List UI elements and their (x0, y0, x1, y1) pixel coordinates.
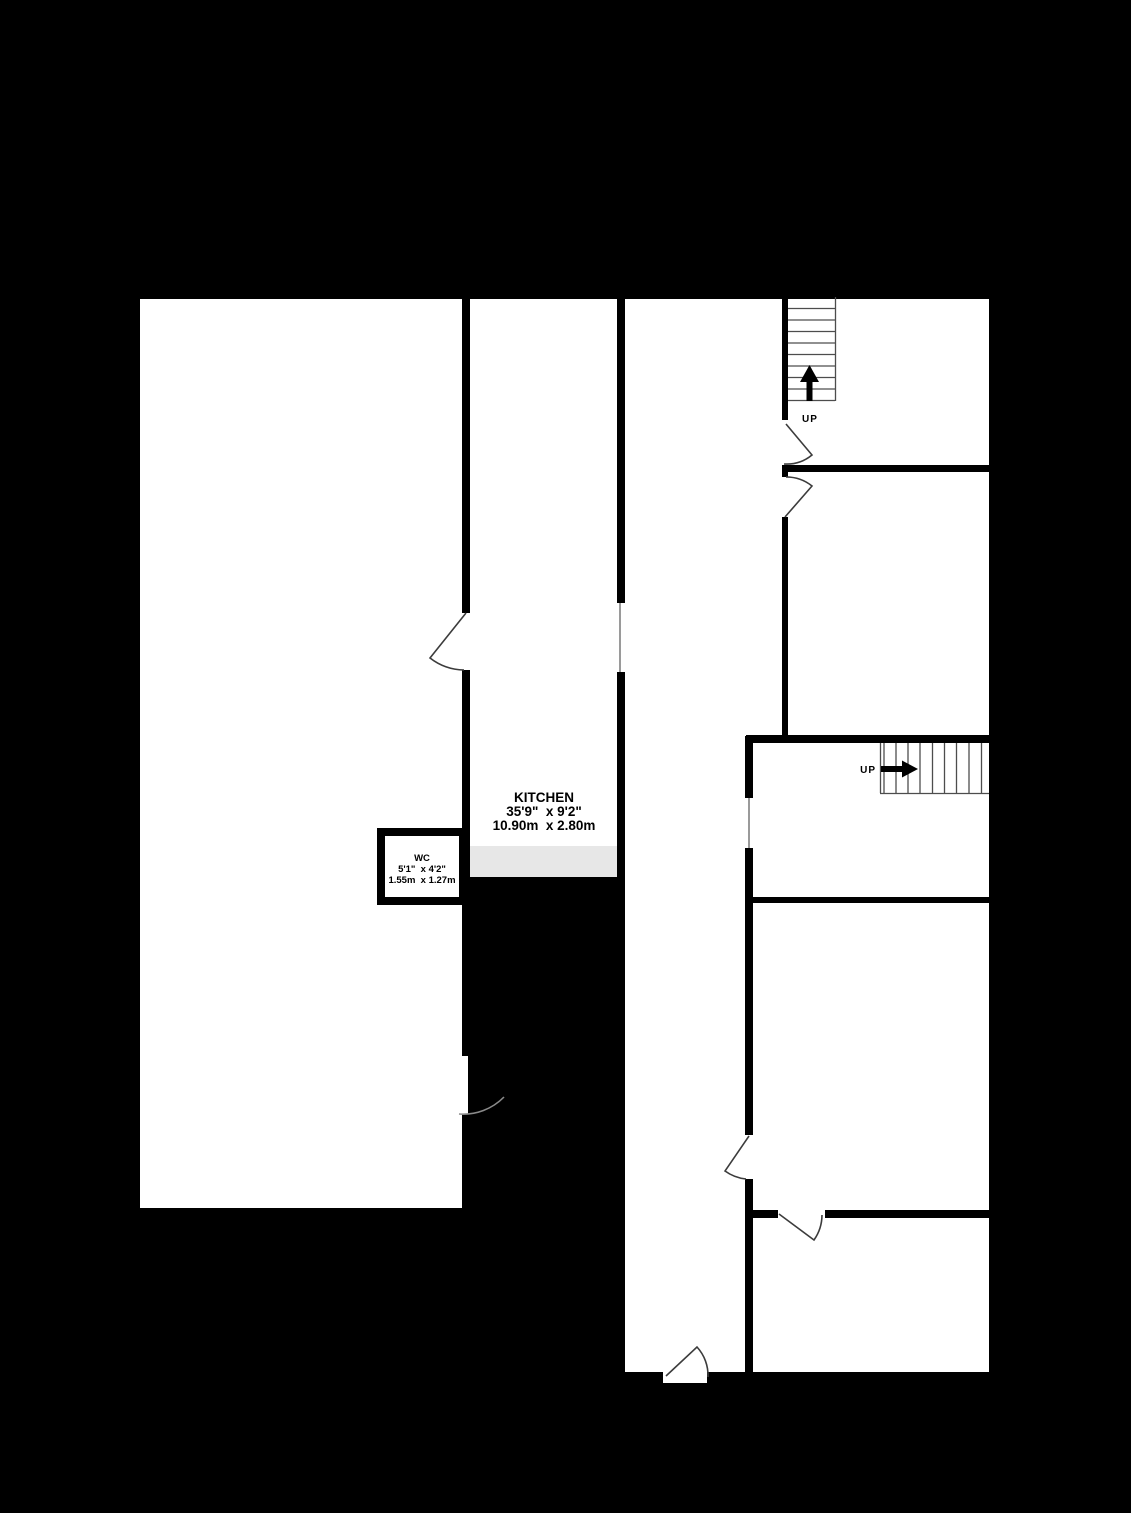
wall-right (989, 293, 997, 1381)
wc-size-imperial: 5'1" x 4'2" (398, 864, 446, 875)
room-bottom-right-floor (753, 1218, 989, 1372)
wall-stair-room-top (746, 735, 997, 743)
floor-plan: UP UP KITCHEN 35'9" x 9'2" 10.90m x 2. (0, 0, 1131, 1513)
kitchen-size-imperial: 35'9" x 9'2" (506, 804, 582, 819)
opening-left-room-door (460, 1056, 468, 1114)
kitchen-size-metric: 10.90m x 2.80m (493, 818, 596, 833)
opening-kitchen-door (460, 613, 472, 670)
wall-top (136, 293, 997, 299)
wall-stair-room-bottom (753, 897, 997, 903)
opening-middle-room-door (780, 477, 790, 517)
wall-kitchen-left (462, 297, 470, 877)
room-middle-right-floor (788, 472, 989, 736)
kitchen-floor (470, 297, 617, 846)
stair-right-up-label: UP (860, 765, 876, 776)
kitchen-label: KITCHEN (514, 790, 574, 805)
room-left-floor (138, 297, 462, 1208)
wall-landing-bottom (782, 465, 997, 472)
wall-kitchen-right-hall-left (617, 297, 625, 1381)
wc-size-metric: 1.55m x 1.27m (388, 875, 455, 886)
wc-label: WC (414, 853, 430, 864)
room-right-floor (753, 903, 989, 1210)
kitchen-step-area (470, 846, 617, 877)
wall-left (136, 293, 140, 1210)
wall-kitchen-bottom (462, 877, 625, 897)
stair-top-up-label: UP (802, 414, 818, 425)
